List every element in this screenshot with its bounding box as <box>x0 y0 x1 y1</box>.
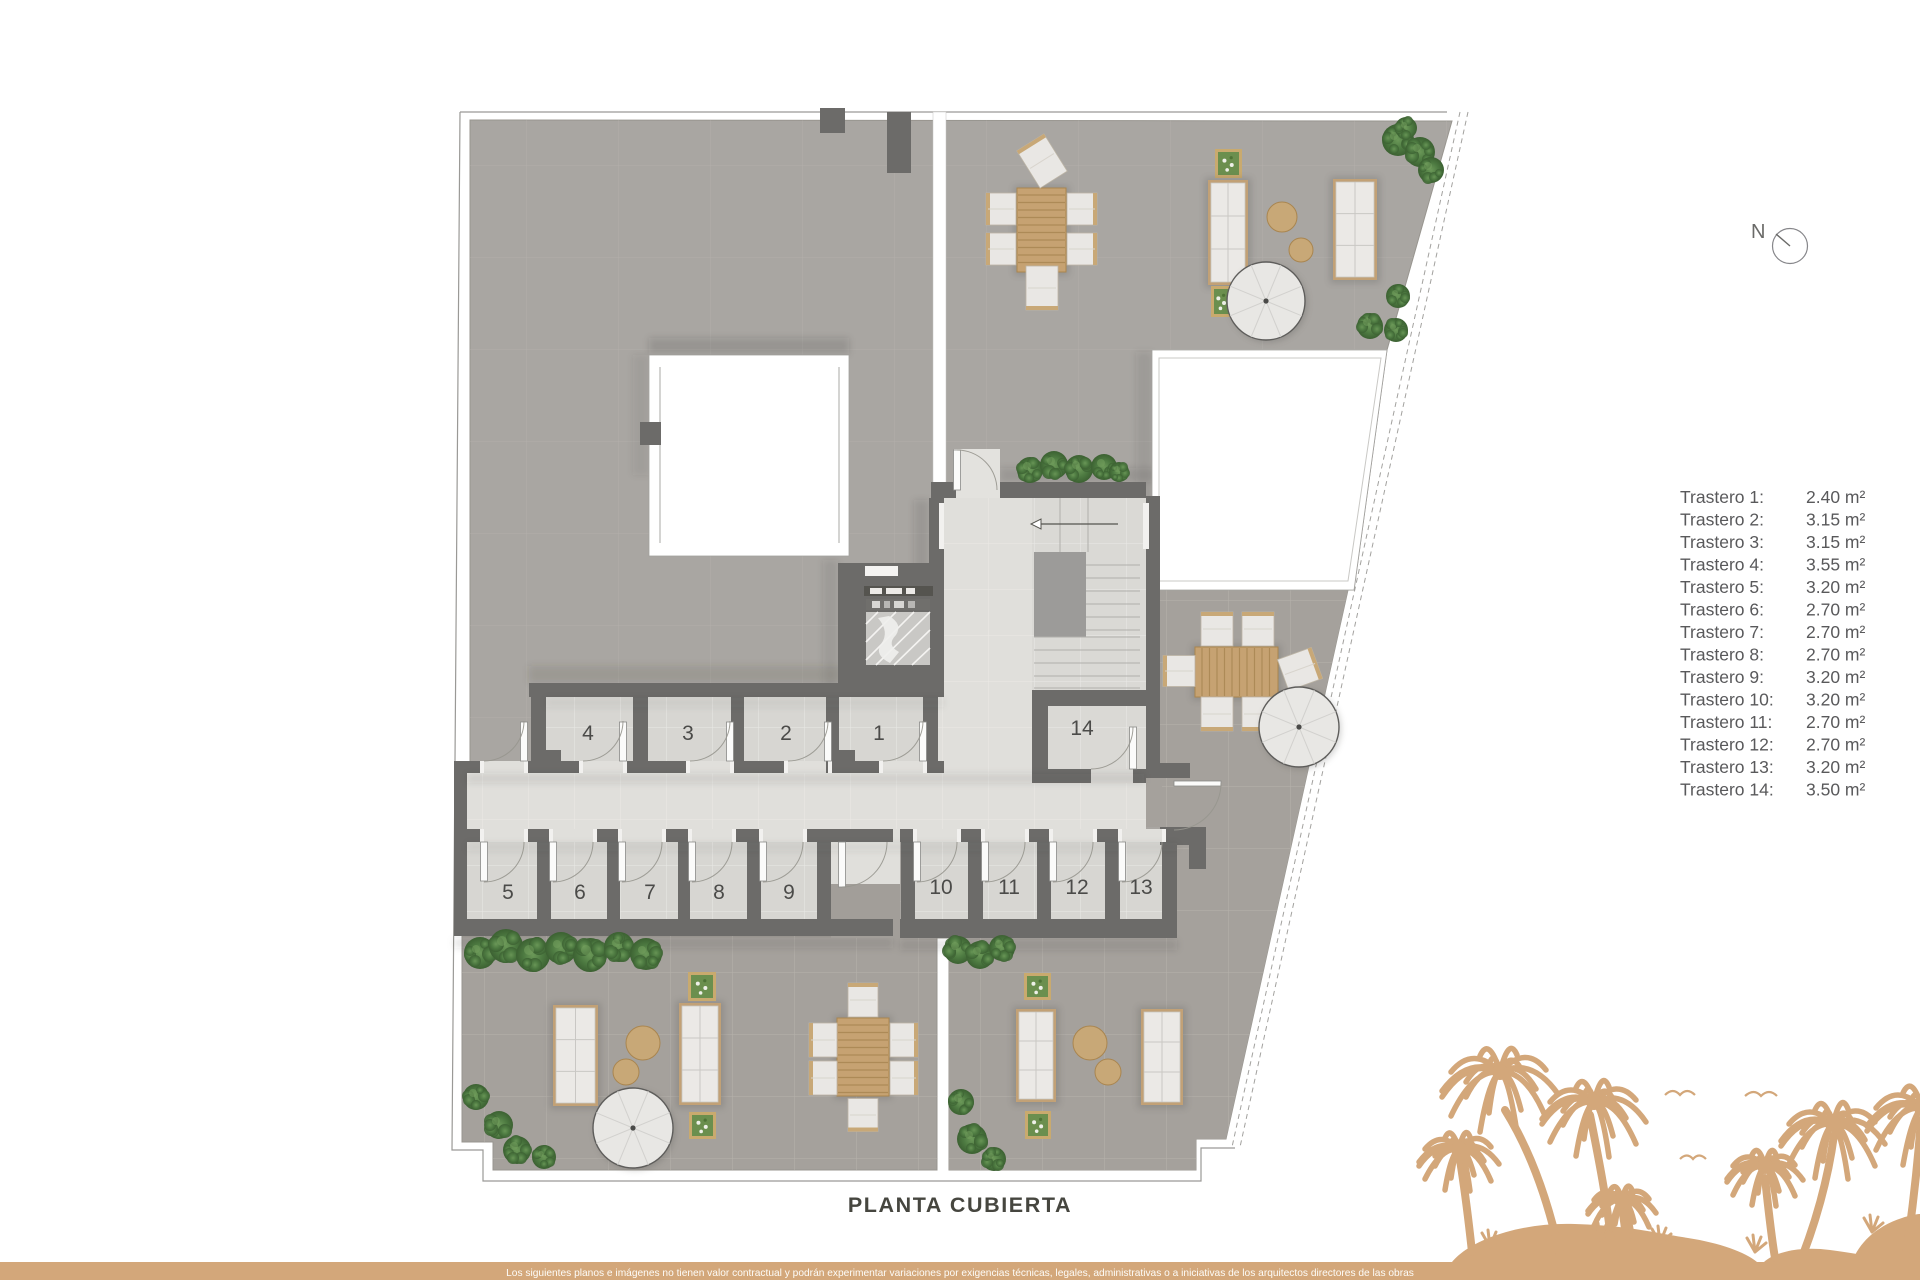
svg-text:3.20 m²: 3.20 m² <box>1806 757 1865 777</box>
svg-text:2: 2 <box>780 722 792 745</box>
svg-text:1: 1 <box>873 722 885 745</box>
svg-text:PLANTA CUBIERTA: PLANTA CUBIERTA <box>848 1193 1072 1217</box>
svg-text:Trastero 14:: Trastero 14: <box>1680 780 1774 800</box>
svg-text:2.70 m²: 2.70 m² <box>1806 712 1865 732</box>
svg-text:6: 6 <box>574 881 586 904</box>
svg-text:5: 5 <box>502 881 514 904</box>
svg-text:3.15 m²: 3.15 m² <box>1806 532 1865 552</box>
svg-text:Trastero 10:: Trastero 10: <box>1680 690 1774 710</box>
svg-text:Trastero 1:: Trastero 1: <box>1680 487 1764 507</box>
svg-text:2.70 m²: 2.70 m² <box>1806 645 1865 665</box>
svg-text:13: 13 <box>1129 876 1152 899</box>
svg-text:Trastero 4:: Trastero 4: <box>1680 555 1764 575</box>
svg-text:14: 14 <box>1070 717 1094 740</box>
svg-text:Los siguientes planos e imágen: Los siguientes planos e imágenes no tien… <box>506 1268 1414 1279</box>
svg-text:4: 4 <box>582 722 594 745</box>
svg-text:2.70 m²: 2.70 m² <box>1806 600 1865 620</box>
svg-text:8: 8 <box>713 881 725 904</box>
svg-text:9: 9 <box>783 881 795 904</box>
svg-text:Trastero 3:: Trastero 3: <box>1680 532 1764 552</box>
svg-text:2.40 m²: 2.40 m² <box>1806 487 1865 507</box>
svg-text:3.20 m²: 3.20 m² <box>1806 690 1865 710</box>
svg-text:Trastero 6:: Trastero 6: <box>1680 600 1764 620</box>
svg-text:7: 7 <box>644 881 656 904</box>
svg-text:Trastero 12:: Trastero 12: <box>1680 735 1774 755</box>
svg-text:10: 10 <box>929 876 952 899</box>
svg-text:Trastero 2:: Trastero 2: <box>1680 510 1764 530</box>
svg-text:N: N <box>1751 221 1765 243</box>
svg-text:3.55 m²: 3.55 m² <box>1806 555 1865 575</box>
svg-text:3.20 m²: 3.20 m² <box>1806 577 1865 597</box>
svg-text:Trastero 9:: Trastero 9: <box>1680 667 1764 687</box>
svg-text:2.70 m²: 2.70 m² <box>1806 622 1865 642</box>
svg-text:3: 3 <box>682 722 694 745</box>
svg-text:Trastero 13:: Trastero 13: <box>1680 757 1774 777</box>
svg-text:3.50 m²: 3.50 m² <box>1806 780 1865 800</box>
svg-text:Trastero 5:: Trastero 5: <box>1680 577 1764 597</box>
svg-text:3.20 m²: 3.20 m² <box>1806 667 1865 687</box>
svg-text:Trastero 8:: Trastero 8: <box>1680 645 1764 665</box>
svg-text:2.70 m²: 2.70 m² <box>1806 735 1865 755</box>
svg-text:Trastero 11:: Trastero 11: <box>1680 712 1772 732</box>
svg-text:11: 11 <box>998 876 1020 899</box>
svg-text:12: 12 <box>1065 876 1088 899</box>
svg-text:3.15 m²: 3.15 m² <box>1806 510 1865 530</box>
svg-text:Trastero 7:: Trastero 7: <box>1680 622 1764 642</box>
